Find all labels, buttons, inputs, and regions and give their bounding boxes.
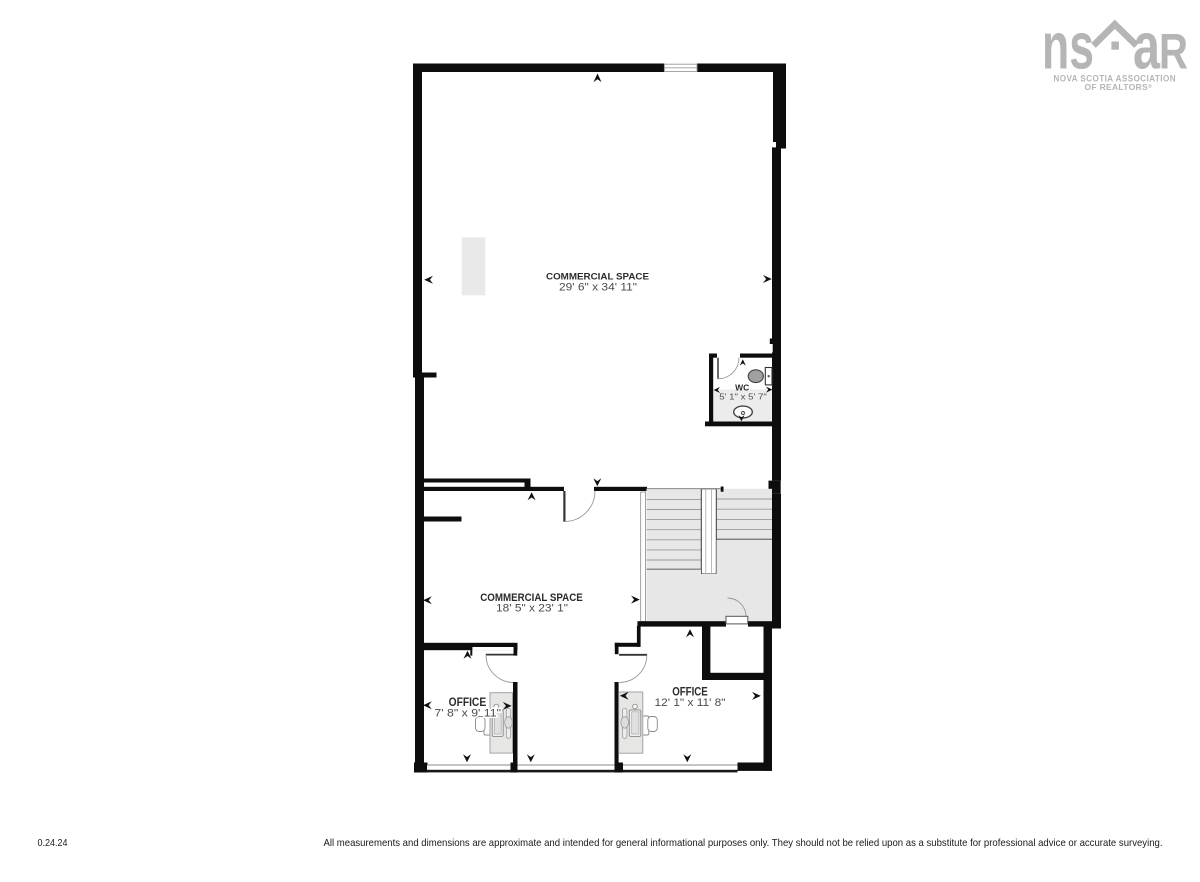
svg-text:18' 5" x 23' 1": 18' 5" x 23' 1"	[496, 602, 568, 614]
svg-text:7' 8" x 9' 11": 7' 8" x 9' 11"	[434, 707, 501, 719]
svg-text:All measurements and dimension: All measurements and dimensions are appr…	[324, 837, 1163, 849]
svg-text:a: a	[1133, 9, 1161, 83]
svg-text:29' 6" x 34' 11": 29' 6" x 34' 11"	[559, 282, 637, 294]
svg-text:0.24.24: 0.24.24	[38, 837, 68, 849]
svg-text:R: R	[1159, 24, 1188, 80]
svg-text:12' 1" x 11' 8": 12' 1" x 11' 8"	[655, 697, 726, 709]
svg-text:5' 1" x 5' 7": 5' 1" x 5' 7"	[719, 391, 767, 401]
svg-text:ns: ns	[1042, 9, 1094, 83]
svg-text:OF REALTORS®: OF REALTORS®	[1085, 82, 1152, 92]
